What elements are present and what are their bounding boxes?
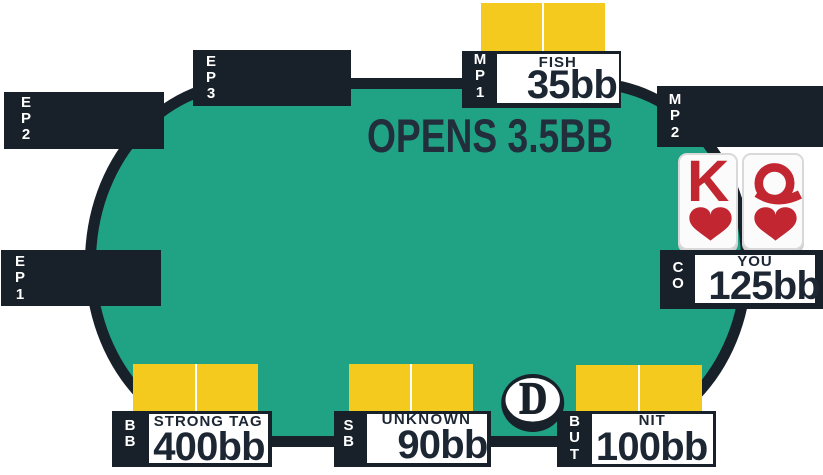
svg-text:D: D <box>519 373 547 424</box>
